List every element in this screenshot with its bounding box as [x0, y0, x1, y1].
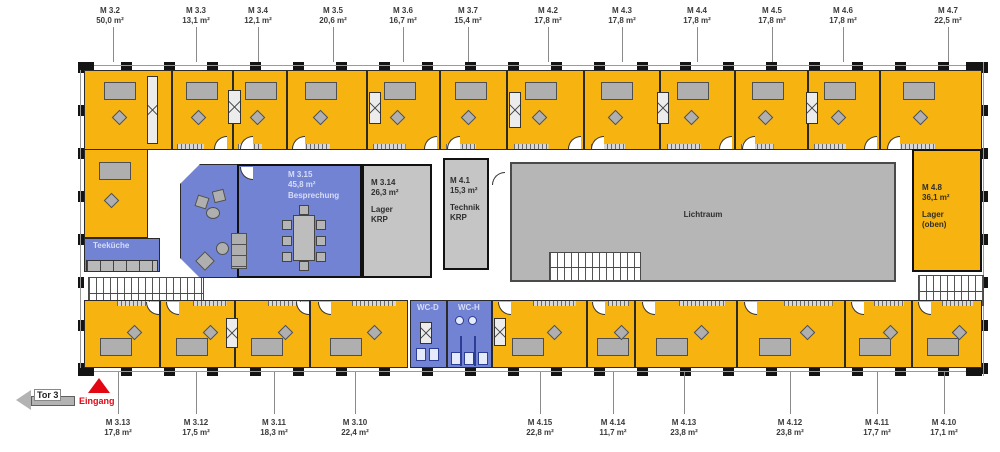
leader-line — [613, 372, 614, 414]
room-label-m3-3: M 3.313,1 m² — [182, 6, 210, 26]
kitchen-counter — [86, 260, 158, 272]
room-label-m4-13: M 4.1323,8 m² — [670, 418, 698, 438]
chair — [299, 261, 309, 271]
m3-15-label: M 3.15 45,8 m² Besprechung — [288, 170, 339, 201]
wall-corner — [78, 368, 94, 376]
gate-label: Tor 3 — [34, 389, 61, 401]
room-m3-14: M 3.14 26,3 m² Lager KRP — [362, 164, 432, 278]
room-label-m3-6: M 3.616,7 m² — [389, 6, 417, 26]
conference-table — [293, 215, 315, 261]
room-m4-1: M 4.1 15,3 m² Technik KRP — [443, 158, 489, 270]
exterior-wall-bottom — [78, 368, 982, 376]
leader-line — [274, 372, 275, 414]
m4-1-label: M 4.1 15,3 m² Technik KRP — [450, 176, 480, 224]
urinal — [468, 316, 477, 325]
room-label-m3-2: M 3.250,0 m² — [96, 6, 124, 26]
leader-line — [684, 372, 685, 414]
leader-line — [196, 372, 197, 414]
room-m3-2 — [84, 70, 172, 150]
lounge-table — [206, 207, 220, 219]
leader-line — [540, 372, 541, 414]
wc-d-label: WC-D — [417, 303, 439, 313]
toilet — [429, 348, 439, 361]
room-m3-7 — [440, 70, 507, 150]
m3-14-label: M 3.14 26,3 m² Lager KRP — [371, 178, 399, 226]
shaft — [509, 92, 521, 128]
room-label-m4-11: M 4.1117,7 m² — [863, 418, 891, 438]
room-label-m3-11: M 3.1118,3 m² — [260, 418, 288, 438]
room-m3-2-wing — [84, 149, 148, 238]
room-label-m4-15: M 4.1522,8 m² — [526, 418, 554, 438]
room-m3-4 — [233, 70, 287, 150]
wall-corner — [966, 368, 982, 376]
room-label-m4-10: M 4.1017,1 m² — [930, 418, 958, 438]
wc-h-label: WC-H — [458, 303, 480, 313]
shaft — [494, 318, 506, 346]
room-label-m3-13: M 3.1317,8 m² — [104, 418, 132, 438]
shaft — [420, 322, 432, 344]
chair — [316, 236, 326, 246]
room-label-m3-7: M 3.715,4 m² — [454, 6, 482, 26]
m4-8-label: M 4.8 36,1 m² Lager (oben) — [922, 183, 950, 231]
leader-line — [877, 372, 878, 414]
floor-plan: M 3.250,0 m² M 3.313,1 m² M 3.412,1 m² M… — [0, 0, 1000, 452]
shaft — [147, 76, 158, 144]
shaft — [657, 92, 669, 124]
chair — [282, 220, 292, 230]
room-label-m4-12: M 4.1223,8 m² — [776, 418, 804, 438]
toilet — [416, 348, 426, 361]
entrance-arrow-icon — [88, 378, 110, 393]
leader-line — [355, 372, 356, 414]
left-arrow-icon — [16, 390, 31, 410]
lounge-table — [216, 242, 229, 255]
chair — [316, 252, 326, 262]
wc-partition — [474, 336, 476, 366]
chair — [282, 252, 292, 262]
room-label-m3-12: M 3.1217,5 m² — [182, 418, 210, 438]
shaft — [806, 92, 818, 124]
room-label-m4-6: M 4.617,8 m² — [829, 6, 857, 26]
wall-corner — [78, 62, 94, 70]
urinal — [455, 316, 464, 325]
room-lichtraum: Lichtraum — [510, 162, 896, 282]
exterior-wall-top — [78, 62, 982, 70]
chair — [299, 205, 309, 215]
lichtraum-label: Lichtraum — [512, 210, 894, 220]
chair — [282, 236, 292, 246]
room-label-m4-3: M 4.317,8 m² — [608, 6, 636, 26]
staircase-lichtraum — [549, 252, 641, 281]
entrance-label: Eingang — [79, 396, 115, 406]
shaft — [369, 92, 381, 124]
room-label-m3-4: M 3.412,1 m² — [244, 6, 272, 26]
room-label-m3-10: M 3.1022,4 m² — [341, 418, 369, 438]
wall-corner — [966, 62, 982, 70]
leader-line — [118, 372, 119, 414]
leader-line — [790, 372, 791, 414]
room-label-m3-5: M 3.520,6 m² — [319, 6, 347, 26]
room-m4-8: M 4.8 36,1 m² Lager (oben) — [912, 149, 982, 272]
room-label-m4-5: M 4.517,8 m² — [758, 6, 786, 26]
shaft — [226, 318, 238, 348]
room-label-m4-14: M 4.1411,7 m² — [599, 418, 626, 438]
room-label-m4-2: M 4.217,8 m² — [534, 6, 562, 26]
shaft — [228, 90, 241, 124]
teekueche-label: Teeküche — [93, 241, 129, 251]
leader-line — [944, 372, 945, 414]
toilet — [464, 352, 474, 365]
sofa — [231, 233, 247, 269]
toilet — [478, 352, 488, 365]
room-label-m4-4: M 4.417,8 m² — [683, 6, 711, 26]
room-label-m4-7: M 4.722,5 m² — [934, 6, 962, 26]
toilet — [451, 352, 461, 365]
exterior-wall-right — [981, 62, 988, 376]
chair — [316, 220, 326, 230]
